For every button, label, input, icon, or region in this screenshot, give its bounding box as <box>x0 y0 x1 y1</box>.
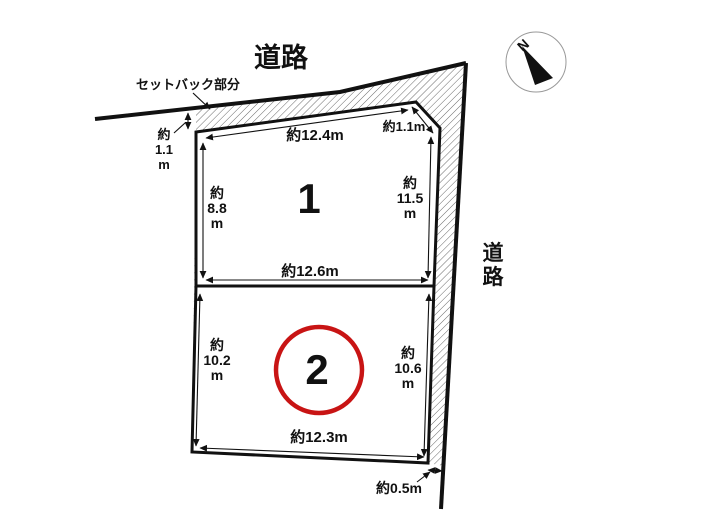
setback-width-line1: 約 <box>157 127 170 142</box>
plot-2-dim-bottom: 約12.3m <box>290 428 348 446</box>
plot-1-dim-left-line3: m <box>211 215 223 231</box>
road-label-right-char1: 道 <box>483 241 504 265</box>
plot-1-dim-bottom: 約12.6m <box>281 262 339 280</box>
plot-2-dim-left-line2: 10.2 <box>203 352 230 368</box>
road-label-top: 道路 <box>254 42 309 73</box>
plot-2-dim-right-line3: m <box>402 375 414 391</box>
plot-1-dim-right-line3: m <box>404 205 416 221</box>
land-plot-map: N 道路 道 路 セットバック部分 約 1.1 m 約12.4m 約1.1m 約… <box>0 0 705 525</box>
plot-2-dim-left-line1: 約 <box>210 337 224 353</box>
plot-2-dim-right-line1: 約 <box>401 345 415 361</box>
plot-1-dim-top: 約12.4m <box>286 126 344 144</box>
plot-1-dim-right-line2: 11.5 <box>397 190 424 206</box>
road-label-right-char2: 路 <box>483 265 505 289</box>
plot-1-dim-left-line1: 約 <box>210 185 224 201</box>
plot-1-dim-left-line2: 8.8 <box>207 200 227 216</box>
plot-2-dim-left-line3: m <box>211 367 223 383</box>
plot-1-dim-right-line1: 約 <box>403 175 417 191</box>
plot-1-number: 1 <box>297 175 320 222</box>
setback-width-line2: 1.1 <box>155 142 173 157</box>
plot-2-dim-right-line2: 10.6 <box>394 360 421 376</box>
setback-width-line3: m <box>158 157 170 172</box>
north-compass: N <box>506 32 566 92</box>
plot-2-bottom-gap-dim: 約0.5m <box>376 480 422 496</box>
plot-1-corner-cut-dim: 約1.1m <box>383 119 426 134</box>
dim-arrow-bottom-gap <box>428 470 442 471</box>
setback-width-label-pointer <box>174 123 185 133</box>
plot-2-number: 2 <box>305 346 328 393</box>
plot-diagram-canvas: N 道路 道 路 セットバック部分 約 1.1 m 約12.4m 約1.1m 約… <box>0 0 705 525</box>
setback-label: セットバック部分 <box>136 77 240 92</box>
